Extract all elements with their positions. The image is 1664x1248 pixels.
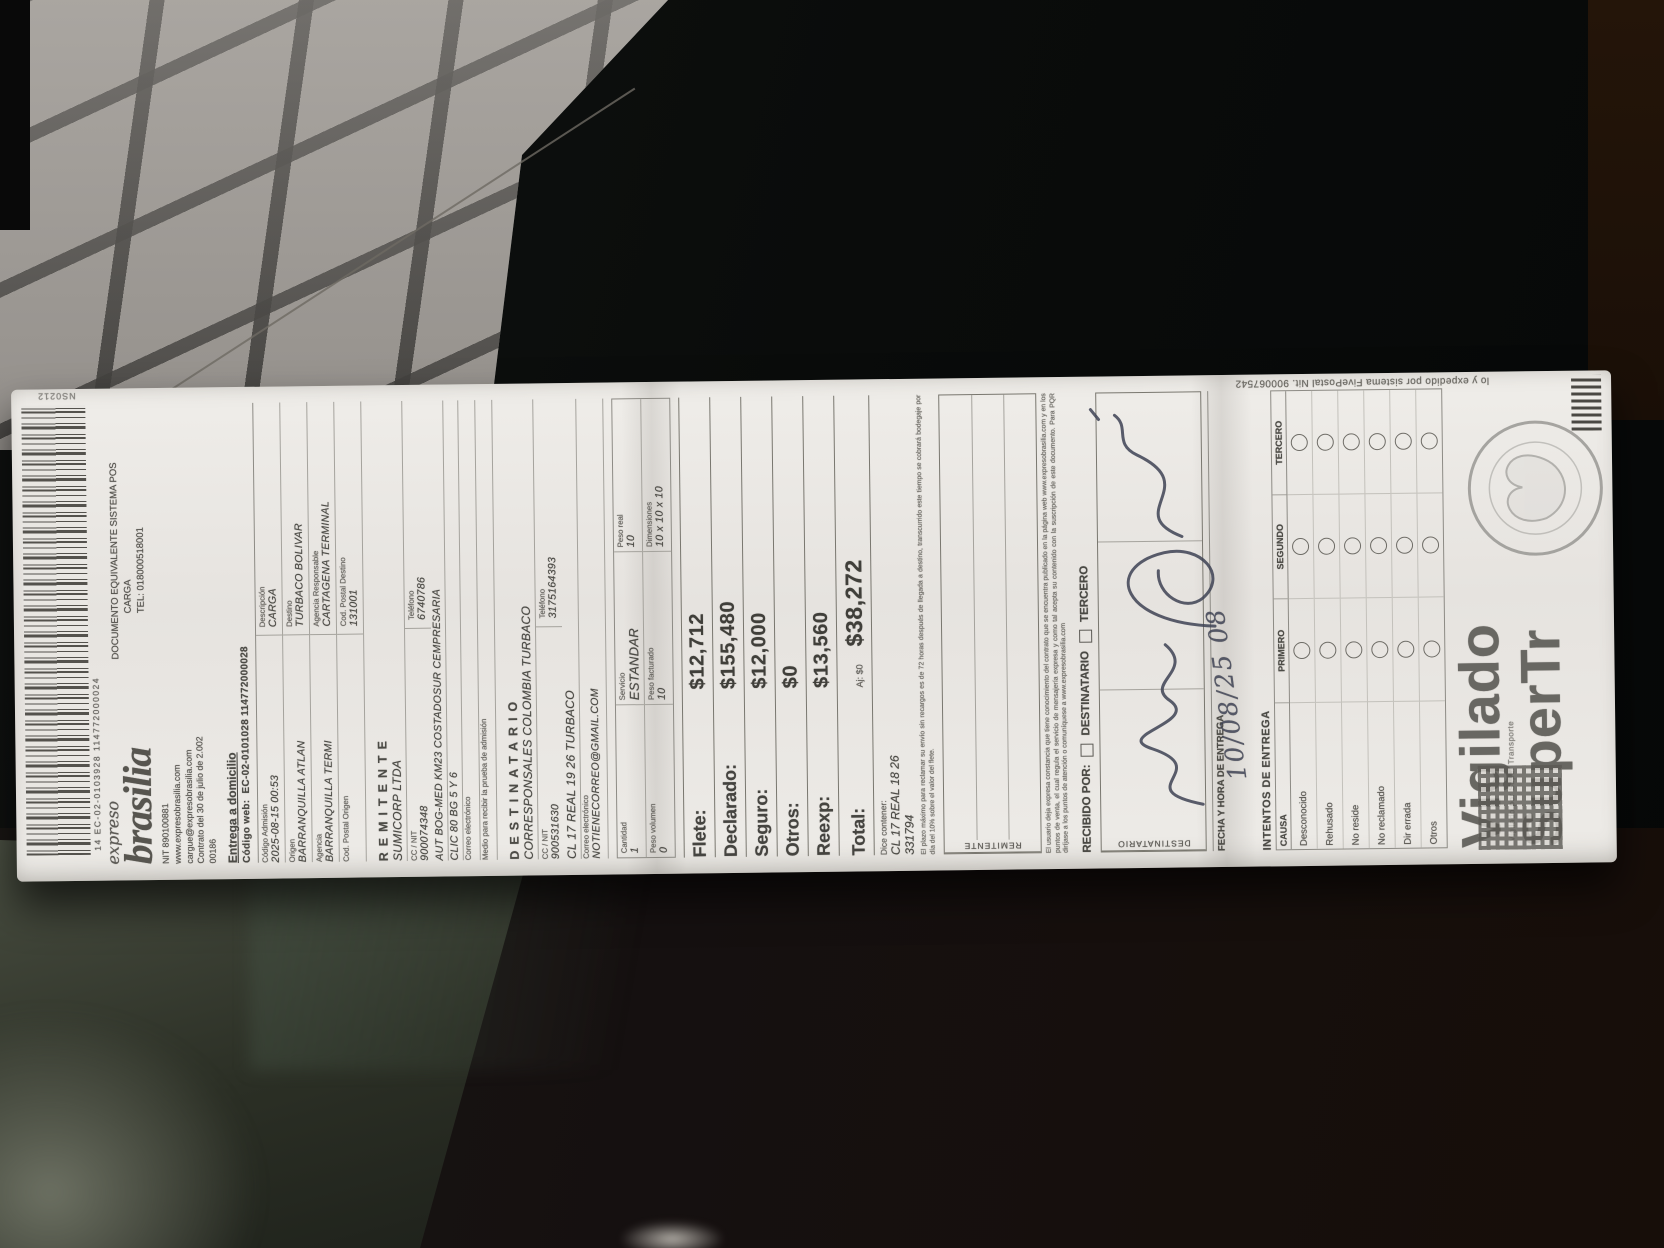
window-frame-edge (0, 0, 30, 230)
sender-row-label: REMITENTE (945, 839, 1041, 853)
signature-scribble (1070, 392, 1245, 824)
cause-row-label: No reside (1344, 702, 1367, 848)
contract-notice: El usuario deja expresa constancia que t… (1041, 393, 1072, 853)
web-code-label: Código web: (242, 800, 254, 863)
attempt-col-1: PRIMERO (1274, 599, 1289, 703)
floor-light-sliver (622, 1222, 722, 1248)
quantity-value: 1 (627, 709, 641, 853)
sender-id-value: 900074348 (417, 635, 432, 861)
attempt-circle (1396, 537, 1413, 554)
attempt-circle (1317, 434, 1334, 451)
real-weight-value: 10 (624, 403, 638, 547)
reship-label: Reexp: (812, 688, 835, 856)
insurance-value: $12,000 (748, 612, 772, 689)
destination-value: TURBACO BOLIVAR (292, 406, 307, 627)
cause-row-label: Desconocido (1292, 703, 1315, 849)
attempt-circle (1344, 537, 1361, 554)
adjust-value: Aj: $0 (855, 664, 865, 687)
cause-header: CAUSA (1275, 703, 1291, 849)
cause-row-label: Dir errada (1396, 702, 1419, 848)
volume-weight-value: 0 (656, 709, 670, 853)
receipt: NS0212 14 EC-02-0103928 114772000024 exp… (11, 370, 1617, 882)
attempt-circle (1345, 641, 1362, 658)
delivery-attempts-table: CAUSA PRIMERO SEGUNDO TERCERO Desconocid… (1270, 388, 1448, 850)
sender-phone-value: 6740786 (414, 405, 429, 620)
origin-postal-label: Cod. Postal Origen (340, 641, 352, 862)
admission-table: Código Admisión 2025-08-15 00:53 Descrip… (253, 402, 368, 863)
sender-box-cell (972, 395, 1010, 840)
attempt-circle (1395, 433, 1412, 450)
destination-postal-value: 131001 (346, 406, 361, 627)
glass-reflection (250, 850, 750, 1070)
receipt-content: NS0212 14 EC-02-0103928 114772000024 exp… (11, 370, 1617, 882)
reship-value: $13,560 (810, 611, 834, 688)
declared-label: Declarado: (719, 689, 742, 857)
freight-label: Flete: (688, 689, 711, 857)
others-value: $0 (780, 665, 803, 689)
attempt-circle (1292, 538, 1309, 555)
cause-row-label: Rehusado (1318, 703, 1341, 849)
attempt-circle (1319, 642, 1336, 659)
background-right-band (1588, 0, 1664, 420)
shipment-barcode (21, 405, 90, 856)
others-label: Otros: (781, 688, 804, 856)
attempt-col-2: SEGUNDO (1272, 495, 1287, 599)
insurance-label: Seguro: (750, 689, 773, 857)
service-value: ESTANDAR (626, 556, 643, 700)
attempt-circle (1422, 536, 1439, 553)
attempt-circle (1318, 538, 1335, 555)
storage-notice: El plazo máximo para reclamar su envío s… (916, 395, 939, 855)
origin-value: BARRANQUILLA ATLAN (295, 642, 310, 863)
package-table: Cantidad 1 Servicio ESTANDAR Peso real 1… (612, 398, 677, 859)
attempt-circle (1370, 537, 1387, 554)
brand-name: brasilia (119, 659, 158, 864)
attempt-circle (1421, 432, 1438, 449)
recipient-phone-value: 3175164393 (545, 403, 560, 618)
admission-code-value: 2025-08-15 00:53 (268, 642, 283, 863)
attempt-circle (1343, 433, 1360, 450)
agency-value: BARRANQUILLA TERMI (322, 641, 337, 862)
attempt-col-3: TERCERO (1271, 391, 1286, 495)
company-phone: TEL: 018000518001 (133, 404, 148, 613)
brand-logo: expreso brasilia (104, 659, 157, 865)
total-value: $38,272 (841, 559, 869, 647)
web-code-value: EC-02-0101028 114772000028 (240, 646, 253, 793)
recipient-row-label: DESTINATARIO (1101, 837, 1205, 851)
sender-box-cell (1004, 394, 1041, 839)
attempt-circle (1293, 642, 1310, 659)
declared-value: $155,480 (717, 601, 741, 689)
photo-scene: NS0212 14 EC-02-0103928 114772000024 exp… (0, 0, 1664, 1248)
sender-signature-box: REMITENTE (939, 393, 1043, 854)
corner-code: NS0212 (37, 391, 76, 401)
sender-box-cell (940, 395, 978, 840)
edge-barcode-fragment (1571, 374, 1602, 430)
recipient-signature-box: DESTINATARIO (1095, 391, 1207, 852)
dimensions-value: 10 x 10 x 10 (653, 403, 667, 547)
recipient-id-value: 900531630 (548, 633, 563, 859)
round-stamp (1459, 412, 1611, 564)
attempt-circle (1369, 433, 1386, 450)
attempt-circle (1371, 641, 1388, 658)
description-value: CARGA (265, 407, 280, 628)
attempt-circle (1291, 434, 1308, 451)
resp-agency-value: CARTAGENA TERMINAL (319, 406, 334, 627)
attempt-circle (1397, 641, 1414, 658)
attempt-circle (1423, 640, 1440, 657)
background-light-wedge (0, 1010, 260, 1248)
qr-code (1478, 765, 1563, 850)
billed-weight-value: 10 (655, 556, 669, 700)
cause-row-label: Otros (1422, 701, 1445, 847)
cause-row-label: No reclamado (1370, 702, 1393, 848)
freight-value: $12,712 (686, 613, 710, 690)
total-label: Total: (847, 687, 870, 855)
